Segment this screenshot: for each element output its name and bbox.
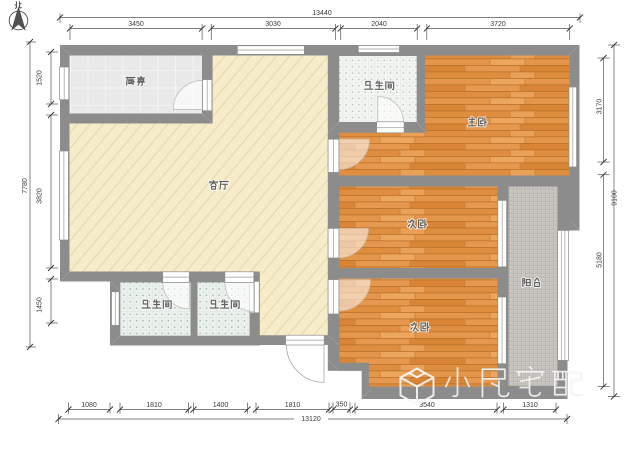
svg-text:3450: 3450 xyxy=(128,21,144,28)
svg-text:1310: 1310 xyxy=(522,402,538,409)
svg-text:3720: 3720 xyxy=(490,21,506,28)
svg-text:1450: 1450 xyxy=(37,297,44,313)
svg-text:1400: 1400 xyxy=(213,402,229,409)
svg-text:9100: 9100 xyxy=(611,190,618,206)
svg-text:13440: 13440 xyxy=(312,10,332,17)
svg-text:7780: 7780 xyxy=(22,178,29,194)
svg-text:2040: 2040 xyxy=(371,21,387,28)
svg-text:3030: 3030 xyxy=(265,21,281,28)
svg-text:1520: 1520 xyxy=(37,70,44,86)
svg-text:13120: 13120 xyxy=(301,416,321,423)
svg-text:3170: 3170 xyxy=(596,99,603,115)
svg-text:3820: 3820 xyxy=(37,188,44,204)
svg-text:1080: 1080 xyxy=(81,402,97,409)
svg-text:350: 350 xyxy=(336,402,348,409)
svg-text:1810: 1810 xyxy=(146,402,162,409)
svg-text:5180: 5180 xyxy=(596,252,603,268)
svg-text:1810: 1810 xyxy=(285,402,301,409)
